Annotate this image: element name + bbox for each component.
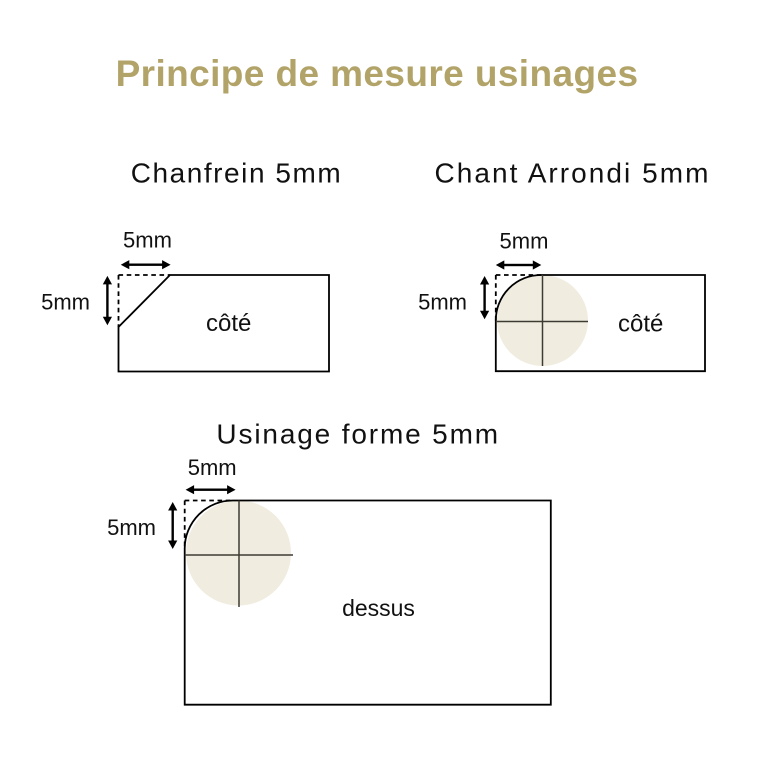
svg-text:dessus: dessus	[342, 595, 415, 621]
svg-text:Usinage forme 5mm: Usinage forme 5mm	[216, 419, 500, 450]
svg-text:Chant Arrondi 5mm: Chant Arrondi 5mm	[434, 158, 710, 189]
svg-text:5mm: 5mm	[41, 289, 90, 314]
svg-text:5mm: 5mm	[188, 455, 237, 480]
svg-text:Principe de mesure usinages: Principe de mesure usinages	[116, 53, 639, 94]
svg-text:côté: côté	[206, 310, 251, 337]
svg-text:Chanfrein 5mm: Chanfrein 5mm	[131, 158, 343, 189]
svg-text:5mm: 5mm	[418, 289, 467, 314]
svg-text:5mm: 5mm	[123, 228, 172, 253]
svg-text:5mm: 5mm	[500, 229, 549, 254]
svg-text:côté: côté	[618, 311, 663, 338]
svg-text:5mm: 5mm	[107, 515, 156, 540]
